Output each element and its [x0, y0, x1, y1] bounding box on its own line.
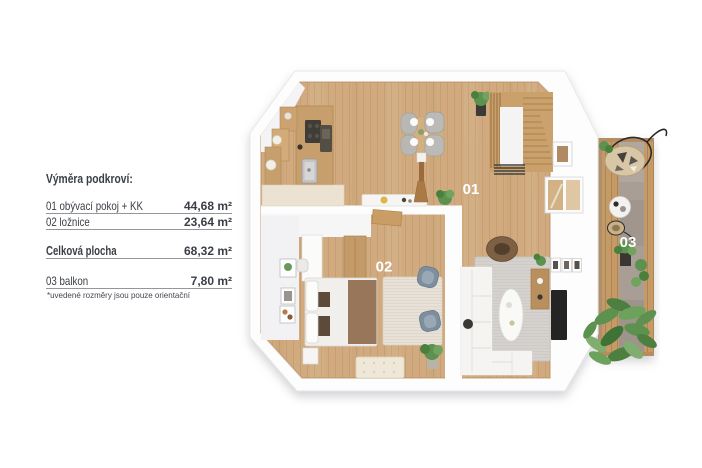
svg-text:03: 03	[620, 234, 637, 251]
svg-text:02: 02	[376, 259, 393, 276]
svg-text:01: 01	[463, 181, 480, 198]
